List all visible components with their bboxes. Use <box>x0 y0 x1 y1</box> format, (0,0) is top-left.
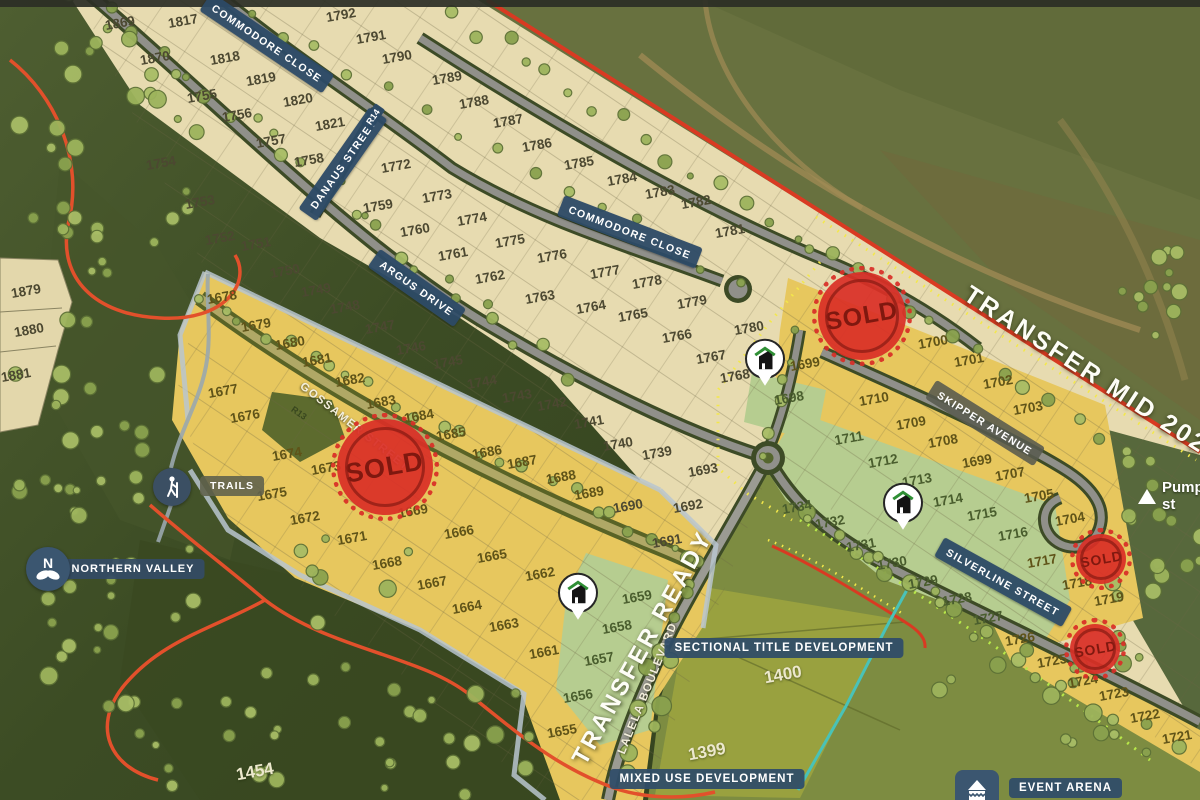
lot-label-1725: 1725 <box>1036 651 1068 671</box>
lot-label-1710: 1710 <box>858 389 890 409</box>
event-arena-icon <box>955 770 999 800</box>
lot-label-1763: 1763 <box>524 287 556 307</box>
lot-label-1819: 1819 <box>245 69 277 89</box>
lot-label-1722: 1722 <box>1129 706 1161 726</box>
lot-label-1820: 1820 <box>282 90 314 110</box>
sold-stamp-3: SOLD <box>1076 534 1126 584</box>
lot-label-1880: 1880 <box>13 320 45 340</box>
lot-label-1702: 1702 <box>982 372 1014 392</box>
lot-label-1709: 1709 <box>895 413 927 433</box>
developer-house-pin-2 <box>883 483 923 523</box>
lot-label-1775: 1775 <box>494 231 526 251</box>
lot-label-1712: 1712 <box>867 451 899 471</box>
street-label-silverline-street: SILVERLINE STREET <box>934 537 1072 627</box>
lot-label-1705: 1705 <box>1023 486 1055 506</box>
lot-label-1744: 1744 <box>466 372 498 392</box>
lot-label-1748: 1748 <box>329 297 361 317</box>
house-logo-icon <box>750 344 780 374</box>
lot-label-1767: 1767 <box>695 347 727 367</box>
lot-label-1732: 1732 <box>814 512 846 532</box>
lot-label-1755: 1755 <box>186 86 218 106</box>
lot-label-1727: 1727 <box>972 608 1004 628</box>
lot-label-1729: 1729 <box>907 572 939 592</box>
lot-label-1711: 1711 <box>833 428 864 448</box>
lot-label-1776: 1776 <box>536 246 568 266</box>
compass-icon: N <box>26 547 70 591</box>
lot-label-1662: 1662 <box>524 564 556 584</box>
road-marker-r13: R13 <box>289 404 308 422</box>
lot-label-1788: 1788 <box>458 92 490 112</box>
estate-masterplan-map: TRAILS NORTHERN VALLEY N SECTIONAL TITLE… <box>0 0 1200 800</box>
lot-label-1672: 1672 <box>289 508 321 528</box>
lot-label-1789: 1789 <box>431 68 463 88</box>
lot-label-1704: 1704 <box>1054 509 1086 529</box>
lot-label-1667: 1667 <box>416 573 448 593</box>
lot-label-1759: 1759 <box>362 196 394 216</box>
lot-label-1674: 1674 <box>271 444 303 464</box>
lot-label-1740: 1740 <box>602 434 634 454</box>
lot-label-1699: 1699 <box>789 354 821 374</box>
lot-label-1708: 1708 <box>927 431 959 451</box>
lot-label-1677: 1677 <box>207 381 239 401</box>
sold-stamp-2: SOLD <box>818 272 906 360</box>
lot-label-1879: 1879 <box>10 281 42 301</box>
lot-label-1745: 1745 <box>432 352 464 372</box>
lot-label-1787: 1787 <box>492 111 524 131</box>
sectional-title-development-label: SECTIONAL TITLE DEVELOPMENT <box>664 638 903 658</box>
lot-label-1785: 1785 <box>563 153 595 173</box>
developer-house-pin-1 <box>745 339 785 379</box>
developer-house-pin-3 <box>558 573 598 613</box>
lot-label-1791: 1791 <box>355 27 387 47</box>
lot-label-1666: 1666 <box>443 522 475 542</box>
event-arena-group: EVENT ARENA <box>955 770 1122 800</box>
lot-label-1664: 1664 <box>451 597 483 617</box>
lot-label-1668: 1668 <box>371 553 403 573</box>
lot-label-1715: 1715 <box>966 504 998 524</box>
house-logo-icon <box>563 578 593 608</box>
lot-label-1781: 1781 <box>714 221 746 241</box>
lot-label-1683: 1683 <box>365 392 397 412</box>
lot-label-1657: 1657 <box>583 649 615 669</box>
lot-label-1753: 1753 <box>184 192 216 212</box>
lot-label-1779: 1779 <box>676 292 708 312</box>
lot-label-1659: 1659 <box>621 587 653 607</box>
lot-label-1691: 1691 <box>651 531 683 551</box>
lot-label-1686: 1686 <box>471 442 503 462</box>
lot-label-1721: 1721 <box>1161 727 1193 747</box>
lot-label-1757: 1757 <box>255 131 287 151</box>
lot-label-1671: 1671 <box>336 528 368 548</box>
lot-label-1746: 1746 <box>395 338 427 358</box>
sold-stamp-text: SOLD <box>823 295 900 336</box>
lot-label-1700: 1700 <box>917 332 949 352</box>
lot-label-1716: 1716 <box>997 524 1029 544</box>
lot-label-1703: 1703 <box>1012 398 1044 418</box>
lot-label-1685: 1685 <box>435 424 467 444</box>
lot-label-1701: 1701 <box>953 350 985 370</box>
lot-label-1762: 1762 <box>474 267 506 287</box>
lot-label-1818: 1818 <box>209 48 241 68</box>
lot-label-1730: 1730 <box>876 553 908 573</box>
lot-label-1698: 1698 <box>773 388 805 408</box>
sold-stamp-4: SOLD <box>1070 624 1120 674</box>
lot-label-1714: 1714 <box>932 490 964 510</box>
lot-label-1756: 1756 <box>221 105 253 125</box>
lot-label-1717: 1717 <box>1026 551 1058 571</box>
event-arena-label: EVENT ARENA <box>1009 778 1122 798</box>
lot-label-1656: 1656 <box>562 686 594 706</box>
lot-label-1752: 1752 <box>204 228 236 248</box>
lot-label-1726: 1726 <box>1004 629 1036 649</box>
sold-stamp-text: SOLD <box>1072 637 1117 660</box>
lot-label-1780: 1780 <box>733 318 765 338</box>
lot-label-1761: 1761 <box>437 244 469 264</box>
lot-label-1665: 1665 <box>476 546 508 566</box>
lot-label-1758: 1758 <box>293 150 325 170</box>
lot-label-1676: 1676 <box>229 406 261 426</box>
lot-label-1760: 1760 <box>399 220 431 240</box>
map-labels-layer: TRAILS NORTHERN VALLEY N SECTIONAL TITLE… <box>0 0 1200 800</box>
trails-label: TRAILS <box>200 476 264 496</box>
lot-label-1454: 1454 <box>235 759 276 785</box>
lot-label-1723: 1723 <box>1098 684 1130 704</box>
lot-label-1682: 1682 <box>334 370 366 390</box>
lot-label-1739: 1739 <box>641 443 673 463</box>
lot-label-1741: 1741 <box>573 412 605 432</box>
lot-label-1742: 1742 <box>536 394 568 414</box>
lot-label-1754: 1754 <box>145 153 177 173</box>
lot-label-1751: 1751 <box>240 234 272 254</box>
lot-label-1690: 1690 <box>612 496 644 516</box>
lot-label-1766: 1766 <box>661 326 693 346</box>
lot-label-1778: 1778 <box>631 272 663 292</box>
lot-label-1663: 1663 <box>488 615 520 635</box>
lot-label-1747: 1747 <box>364 317 396 337</box>
lot-label-1774: 1774 <box>456 209 488 229</box>
lot-label-1679: 1679 <box>240 315 272 335</box>
lot-label-1821: 1821 <box>314 114 346 134</box>
lot-label-1881: 1881 <box>0 365 32 385</box>
sold-stamp-1: SOLD <box>337 419 433 515</box>
mixed-use-development-label: MIXED USE DEVELOPMENT <box>610 769 805 789</box>
lot-label-1786: 1786 <box>521 135 553 155</box>
lot-label-1792: 1792 <box>325 5 357 25</box>
lot-label-1731: 1731 <box>845 535 877 555</box>
sold-stamp-text: SOLD <box>1078 547 1123 570</box>
hiker-icon <box>153 468 191 506</box>
lot-label-1734: 1734 <box>781 497 813 517</box>
lot-label-1773: 1773 <box>421 186 453 206</box>
lot-label-1817: 1817 <box>167 11 199 31</box>
lot-label-1743: 1743 <box>501 386 533 406</box>
lot-label-1869: 1869 <box>104 13 136 33</box>
lot-label-1765: 1765 <box>617 305 649 325</box>
lot-label-1790: 1790 <box>381 47 413 67</box>
lot-label-1699: 1699 <box>961 451 993 471</box>
lot-label-1661: 1661 <box>528 642 560 662</box>
lot-label-1764: 1764 <box>575 297 607 317</box>
lot-label-1784: 1784 <box>606 169 638 189</box>
lot-label-1692: 1692 <box>672 496 704 516</box>
sold-stamp-text: SOLD <box>343 445 426 489</box>
lot-label-1680: 1680 <box>274 333 306 353</box>
lot-label-1655: 1655 <box>546 721 578 741</box>
lot-label-1658: 1658 <box>601 617 633 637</box>
lot-label-1688: 1688 <box>545 467 577 487</box>
lot-label-1678: 1678 <box>206 287 238 307</box>
lot-label-1400: 1400 <box>763 662 804 688</box>
lot-label-1749: 1749 <box>300 280 332 300</box>
lot-label-1783: 1783 <box>644 182 676 202</box>
lot-label-1772: 1772 <box>380 156 412 176</box>
lot-label-1750: 1750 <box>269 261 301 281</box>
lot-label-1870: 1870 <box>139 48 171 68</box>
lot-label-1681: 1681 <box>301 350 333 370</box>
northern-valley-label: NORTHERN VALLEY <box>62 559 205 579</box>
lot-label-1728: 1728 <box>941 589 973 609</box>
lot-label-1707: 1707 <box>994 464 1026 484</box>
lot-label-1693: 1693 <box>687 460 719 480</box>
lot-label-1719: 1719 <box>1093 589 1125 609</box>
lot-label-1782: 1782 <box>680 192 712 212</box>
lot-label-1689: 1689 <box>573 483 605 503</box>
lot-label-1777: 1777 <box>589 262 621 282</box>
pump-station-icon <box>1138 489 1156 504</box>
lot-label-1399: 1399 <box>687 739 728 765</box>
lot-label-1687: 1687 <box>506 452 538 472</box>
house-logo-icon <box>888 488 918 518</box>
pump-station-label: Pump st <box>1162 479 1200 513</box>
pump-station-label-group: Pump st <box>1138 479 1200 513</box>
